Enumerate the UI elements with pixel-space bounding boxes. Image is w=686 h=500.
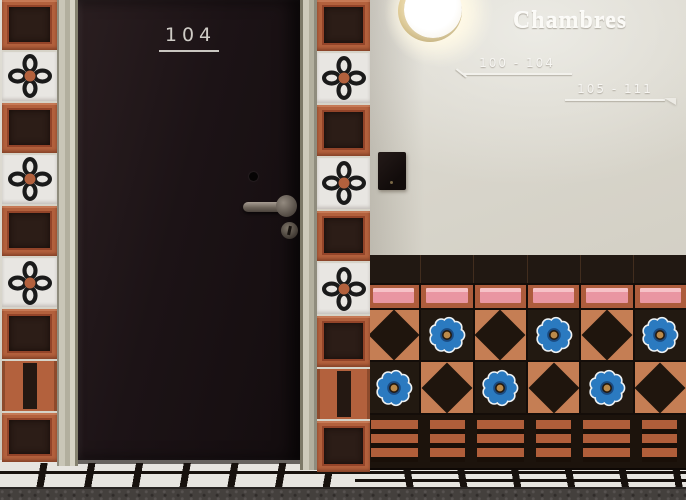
- four-petal-flower-icon: [321, 161, 367, 205]
- handle-rosette: [276, 195, 297, 217]
- arrow-down-right-icon: [664, 98, 676, 105]
- stripe-tile: [474, 415, 527, 468]
- terracotta-tile: [2, 309, 57, 359]
- hotel-corridor-photo: 104 Chambres 100 - 104 105 - 111: [0, 0, 686, 500]
- stripe-tile: [580, 415, 633, 468]
- terracotta-tile: [2, 413, 57, 463]
- left-tile-column: [2, 0, 57, 462]
- reader-led-icon: [390, 181, 393, 184]
- door-number: 104: [159, 24, 219, 52]
- terracotta-tile: [317, 105, 370, 156]
- door-frame-right: [300, 0, 317, 470]
- pink-tile: [368, 285, 419, 308]
- terracotta-tile: [317, 316, 370, 367]
- terracotta-tile: [317, 211, 370, 262]
- sign-underline: [565, 99, 665, 101]
- diamond-tile: [419, 362, 472, 413]
- stripe-tile: [633, 415, 686, 468]
- terracotta-tile: [317, 0, 370, 51]
- terracotta-tile: [317, 421, 370, 472]
- room-range-left-label: 100 - 104: [462, 56, 572, 70]
- key-card-reader: [378, 152, 406, 190]
- stripe-tile: [368, 415, 421, 468]
- flower-tile: [2, 258, 57, 308]
- keyhole-icon: [287, 226, 292, 235]
- dark-tile: [420, 255, 473, 283]
- pink-tile: [526, 285, 579, 308]
- peephole: [249, 172, 258, 181]
- wainscot-row-dark: [368, 255, 686, 283]
- four-petal-flower-icon: [321, 267, 367, 311]
- pink-tile: [419, 285, 472, 308]
- wainscot-row-p2: [368, 360, 686, 413]
- decorative-wainscot: [368, 255, 686, 470]
- blue-flower-tile: [633, 310, 686, 360]
- blue-flower-icon: [373, 367, 415, 409]
- dark-tile: [473, 255, 526, 283]
- blue-flower-icon: [533, 314, 575, 356]
- flower-tile: [317, 158, 370, 209]
- room-range-sign-left: 100 - 104: [462, 56, 572, 75]
- wainscot-row-pink: [368, 283, 686, 308]
- floor-horizontal-line-right: [355, 479, 686, 482]
- blue-flower-tile: [368, 362, 419, 413]
- dark-tile: [527, 255, 580, 283]
- diamond-tile: [579, 310, 632, 360]
- blue-flower-icon: [426, 314, 468, 356]
- blue-flower-icon: [479, 367, 521, 409]
- diamond-tile: [368, 310, 419, 360]
- stripe-tile: [421, 415, 474, 468]
- blue-flower-tile: [419, 310, 472, 360]
- bar-tile: [317, 369, 370, 420]
- blue-flower-tile: [473, 362, 526, 413]
- wainscot-row-stripes: [368, 413, 686, 470]
- diamond-tile: [633, 362, 686, 413]
- terracotta-tile: [2, 206, 57, 256]
- flower-tile: [317, 53, 370, 104]
- door-frame-left: [57, 0, 78, 466]
- chambres-sign: Chambres: [505, 8, 635, 35]
- four-petal-flower-icon: [7, 54, 53, 98]
- flower-tile: [317, 263, 370, 314]
- diamond-tile: [473, 310, 526, 360]
- carpet-runner: [0, 487, 686, 500]
- pink-tile: [579, 285, 632, 308]
- blue-flower-tile: [526, 310, 579, 360]
- blue-flower-tile: [579, 362, 632, 413]
- pink-tile: [473, 285, 526, 308]
- terracotta-tile: [2, 0, 57, 50]
- blue-flower-icon: [639, 314, 681, 356]
- pink-tile: [633, 285, 686, 308]
- four-petal-flower-icon: [7, 261, 53, 305]
- wainscot-row-p1: [368, 308, 686, 360]
- door-number-plate: 104: [78, 24, 300, 52]
- room-range-right-label: 105 - 111: [565, 82, 665, 96]
- dark-tile: [633, 255, 686, 283]
- room-door: 104: [78, 0, 300, 460]
- terracotta-tile: [2, 103, 57, 153]
- four-petal-flower-icon: [321, 56, 367, 100]
- sign-underline: [462, 73, 572, 75]
- dark-tile: [368, 255, 420, 283]
- flower-tile: [2, 155, 57, 205]
- lock-cylinder: [281, 222, 298, 239]
- bar-tile: [2, 361, 57, 411]
- dark-tile: [580, 255, 633, 283]
- diamond-tile: [526, 362, 579, 413]
- blue-flower-icon: [586, 367, 628, 409]
- room-range-sign-right: 105 - 111: [565, 82, 665, 101]
- four-petal-flower-icon: [7, 157, 53, 201]
- stripe-tile: [527, 415, 580, 468]
- flower-tile: [2, 52, 57, 102]
- right-tile-column: [317, 0, 370, 472]
